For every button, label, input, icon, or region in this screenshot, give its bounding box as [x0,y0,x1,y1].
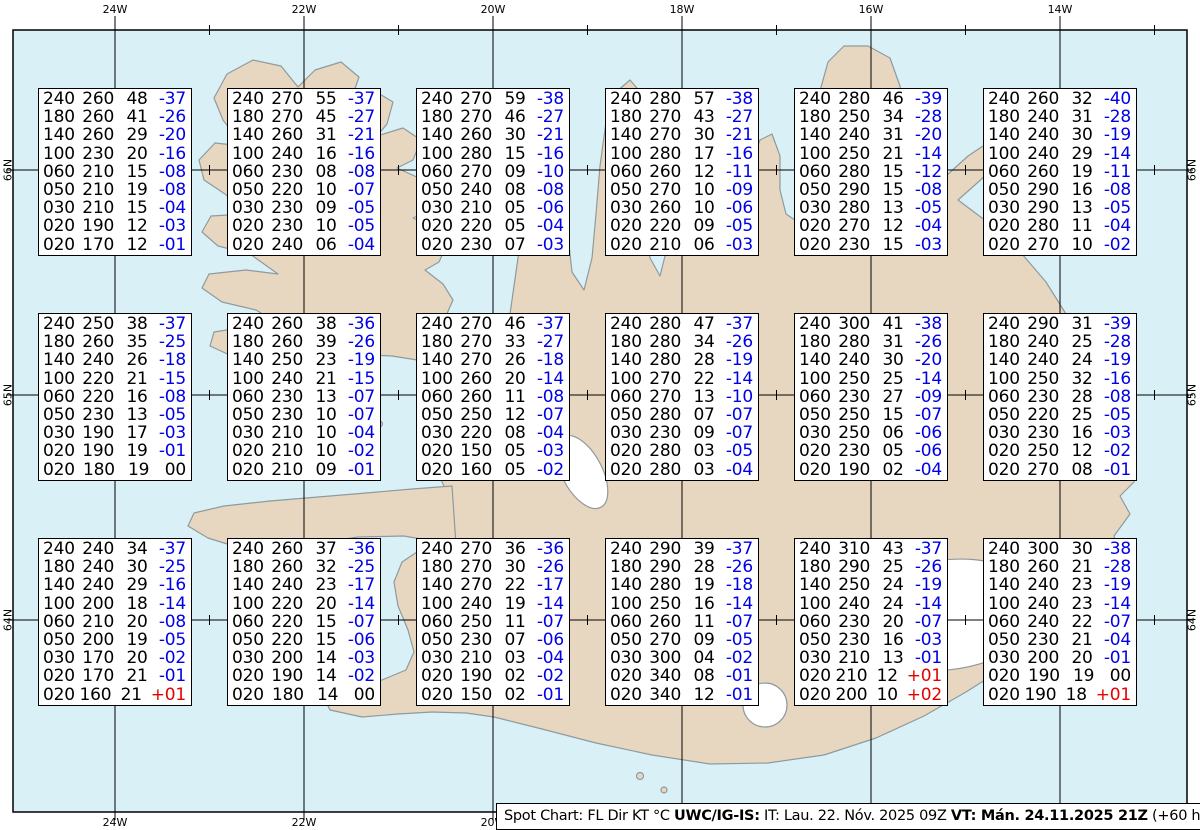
kt-value: 30 [882,351,914,369]
temp-value: -37 [726,315,753,333]
dir-value: 220 [82,388,126,406]
dir-value: 300 [649,649,693,667]
fl-value: 060 [232,163,271,181]
dir-value: 270 [271,90,315,108]
dir-value: 240 [82,351,126,369]
dir-value: 160 [460,461,504,479]
kt-value: 57 [693,90,725,108]
fl-value: 020 [988,217,1027,235]
fl-value: 050 [232,631,271,649]
spot-data-box: 24028046-3918025034-2814024031-201002502… [794,88,948,256]
temp-value: -19 [726,351,753,369]
temp-value: -19 [348,351,375,369]
fl-value: 020 [799,236,838,254]
temp-value: -07 [348,406,375,424]
temp-value: +02 [907,686,942,704]
temp-value: -38 [726,90,753,108]
spot-row: 06021015-08 [43,163,186,181]
temp-value: -26 [537,558,564,576]
dir-value: 220 [460,217,504,235]
fl-value: 140 [988,576,1027,594]
dir-value: 240 [82,540,126,558]
meridian-label-top: 18W [670,3,695,16]
dir-value: 270 [649,181,693,199]
fl-value: 240 [421,315,460,333]
temp-value: -26 [159,108,186,126]
kt-value: 46 [504,108,536,126]
kt-value: 12 [126,236,158,254]
spot-row: 05025015-07 [799,406,942,424]
kt-value: 16 [1071,181,1103,199]
dir-value: 170 [82,236,126,254]
fl-value: 060 [421,163,460,181]
fl-value: 180 [988,108,1027,126]
spot-data-box: 24026038-3618026039-2614025023-191002402… [227,313,381,481]
spot-row: 05021019-08 [43,181,186,199]
temp-value: -05 [159,406,186,424]
spot-row: 18026039-26 [232,333,375,351]
temp-value: -02 [537,667,564,685]
temp-value: -08 [159,181,186,199]
fl-value: 140 [799,126,838,144]
kt-value: 08 [315,163,347,181]
dir-value: 200 [836,686,877,704]
dir-value: 210 [271,442,315,460]
spot-row: 14028028-19 [610,351,753,369]
spot-row: 18029028-26 [610,558,753,576]
spot-row: 02019018+01 [988,686,1131,704]
temp-value: -01 [159,236,186,254]
parallel-label-right: 65N [1186,384,1199,406]
spot-row: 06026011-07 [610,613,753,631]
kt-value: 37 [315,540,347,558]
dir-value: 260 [271,126,315,144]
fl-value: 060 [610,388,649,406]
kt-value: 30 [504,558,536,576]
dir-value: 210 [271,424,315,442]
dir-value: 250 [838,145,882,163]
dir-value: 300 [1027,540,1071,558]
temp-value: -04 [1104,217,1131,235]
kt-value: 21 [126,370,158,388]
temp-value: -36 [348,540,375,558]
dir-value: 240 [1027,351,1071,369]
dir-value: 270 [460,163,504,181]
temp-value: -38 [537,90,564,108]
spot-row: 06025011-07 [421,613,564,631]
dir-value: 190 [271,667,315,685]
fl-value: 050 [232,181,271,199]
meridian-label-top: 24W [103,3,128,16]
spot-row: 14024026-18 [43,351,186,369]
fl-value: 240 [610,315,649,333]
spot-row: 05020019-05 [43,631,186,649]
dir-value: 230 [838,442,882,460]
temp-value: -11 [1104,163,1131,181]
fl-value: 060 [43,163,82,181]
caption-segment: (+60 h) [1148,808,1200,824]
spot-row: 06024022-07 [988,613,1131,631]
kt-value: 41 [882,315,914,333]
fl-value: 020 [799,442,838,460]
kt-value: 26 [504,351,536,369]
spot-row: 02028011-04 [988,217,1131,235]
temp-value: -14 [726,370,753,388]
dir-value: 160 [80,686,121,704]
temp-value: -02 [1104,442,1131,460]
spot-row: 03021010-04 [232,424,375,442]
kt-value: 17 [693,145,725,163]
dir-value: 290 [649,558,693,576]
temp-value: -04 [348,236,375,254]
fl-value: 020 [610,667,649,685]
kt-value: 11 [1071,217,1103,235]
spot-row: 0201801400 [232,686,375,704]
spot-row: 24030041-38 [799,315,942,333]
fl-value: 060 [799,613,838,631]
temp-value: -17 [537,576,564,594]
dir-value: 230 [271,217,315,235]
spot-row: 02019002-04 [799,461,942,479]
spot-row: 06023013-07 [232,388,375,406]
kt-value: 14 [315,649,347,667]
dir-value: 270 [460,540,504,558]
temp-value: -02 [537,461,564,479]
spot-row: 24029031-39 [988,315,1131,333]
spot-row: 06027013-10 [610,388,753,406]
spot-row: 05029016-08 [988,181,1131,199]
dir-value: 200 [82,595,126,613]
kt-value: 08 [504,181,536,199]
temp-value: -08 [537,388,564,406]
parallel-label-right: 66N [1186,159,1199,181]
spot-row: 18026021-28 [988,558,1131,576]
spot-row: 02019002-02 [421,667,564,685]
kt-value: 21 [121,686,151,704]
kt-value: 25 [882,370,914,388]
fl-value: 100 [232,370,271,388]
spot-row: 06026011-08 [421,388,564,406]
temp-value: -04 [537,217,564,235]
spot-row: 0201901900 [988,667,1131,685]
spot-row: 02021006-03 [610,236,753,254]
fl-value: 050 [43,406,82,424]
kt-value: 19 [693,576,725,594]
dir-value: 290 [838,181,882,199]
temp-value: -08 [537,181,564,199]
spot-row: 18026035-25 [43,333,186,351]
fl-value: 020 [232,667,271,685]
spot-row: 02028003-04 [610,461,753,479]
spot-row: 06021020-08 [43,613,186,631]
temp-value: -39 [1104,315,1131,333]
spot-row: 14024023-19 [988,576,1131,594]
temp-value: -08 [159,388,186,406]
spot-row: 05023021-04 [988,631,1131,649]
temp-value: -26 [726,333,753,351]
fl-value: 140 [988,126,1027,144]
spot-row: 05029015-08 [799,181,942,199]
temp-value: -04 [537,424,564,442]
dir-value: 250 [460,406,504,424]
fl-value: 240 [988,90,1027,108]
fl-value: 050 [43,631,82,649]
kt-value: 07 [693,406,725,424]
dir-value: 240 [271,576,315,594]
kt-value: 32 [315,558,347,576]
kt-value: 29 [126,576,158,594]
spot-row: 05022010-07 [232,181,375,199]
kt-value: 22 [1071,613,1103,631]
dir-value: 250 [838,424,882,442]
kt-value: 31 [882,333,914,351]
fl-value: 060 [421,613,460,631]
kt-value: 33 [504,333,536,351]
temp-value: -01 [1104,649,1131,667]
kt-value: 06 [882,424,914,442]
temp-value: -14 [915,370,942,388]
temp-value: -20 [159,126,186,144]
dir-value: 150 [460,686,504,704]
spot-row: 10025032-16 [988,370,1131,388]
temp-value: -26 [915,558,942,576]
temp-value: -07 [1104,613,1131,631]
temp-value: -07 [348,613,375,631]
kt-value: 05 [504,442,536,460]
fl-value: 180 [610,108,649,126]
fl-value: 020 [421,667,460,685]
temp-value: -04 [537,649,564,667]
dir-value: 280 [838,199,882,217]
dir-value: 270 [649,370,693,388]
spot-row: 02023007-03 [421,236,564,254]
kt-value: 27 [882,388,914,406]
temp-value: -08 [348,163,375,181]
dir-value: 240 [460,181,504,199]
temp-value: -06 [726,199,753,217]
fl-value: 180 [232,108,271,126]
temp-value: -25 [348,558,375,576]
kt-value: 16 [693,595,725,613]
spot-row: 14025024-19 [799,576,942,594]
dir-value: 230 [271,406,315,424]
temp-value: -03 [726,236,753,254]
kt-value: 43 [693,108,725,126]
dir-value: 180 [83,461,128,479]
temp-value: -27 [537,108,564,126]
temp-value: -21 [537,126,564,144]
fl-value: 100 [610,595,649,613]
temp-value: -19 [1104,126,1131,144]
kt-value: 34 [693,333,725,351]
kt-value: 16 [315,145,347,163]
kt-value: 18 [1066,686,1096,704]
spot-row: 06023020-07 [799,613,942,631]
spot-row: 03021015-04 [43,199,186,217]
dir-value: 280 [838,333,882,351]
kt-value: 24 [1071,351,1103,369]
spot-row: 03021013-01 [799,649,942,667]
temp-value: -11 [726,163,753,181]
kt-value: 28 [1071,388,1103,406]
parallel-label-left: 66N [2,159,15,181]
temp-value: -05 [915,199,942,217]
dir-value: 210 [82,163,126,181]
spot-row: 06026019-11 [988,163,1131,181]
temp-value: -16 [159,576,186,594]
spot-row: 02021010-02 [232,442,375,460]
dir-value: 190 [1028,667,1073,685]
spot-data-box: 24028057-3818027043-2714027030-211002801… [605,88,759,256]
spot-data-box: 24025038-3718026035-2514024026-181002202… [38,313,192,481]
temp-value: -21 [348,126,375,144]
spot-row: 10028015-16 [421,145,564,163]
dir-value: 210 [838,649,882,667]
dir-value: 230 [838,613,882,631]
dir-value: 240 [1027,145,1071,163]
spot-row: 02027010-02 [988,236,1131,254]
kt-value: 32 [1071,370,1103,388]
temp-value: -18 [537,351,564,369]
fl-value: 020 [988,461,1027,479]
fl-value: 100 [421,370,460,388]
kt-value: 35 [126,333,158,351]
temp-value: -08 [1104,181,1131,199]
temp-value: -37 [537,315,564,333]
dir-value: 210 [82,181,126,199]
fl-value: 240 [421,90,460,108]
kt-value: 02 [882,461,914,479]
kt-value: 31 [1071,108,1103,126]
spot-row: 02016021+01 [43,686,186,704]
fl-value: 140 [799,576,838,594]
kt-value: 15 [882,181,914,199]
spot-row: 02022009-05 [610,217,753,235]
temp-value: -01 [726,667,753,685]
temp-value: -07 [537,406,564,424]
spot-row: 10025016-14 [610,595,753,613]
kt-value: 13 [882,199,914,217]
fl-value: 020 [43,442,82,460]
kt-value: 24 [882,595,914,613]
dir-value: 210 [271,461,315,479]
temp-value: +01 [1096,686,1131,704]
fl-value: 020 [610,686,649,704]
kt-value: 20 [1071,649,1103,667]
dir-value: 260 [271,315,315,333]
spot-row: 06022016-08 [43,388,186,406]
fl-value: 050 [421,181,460,199]
spot-row: 02017012-01 [43,236,186,254]
temp-value: -14 [348,595,375,613]
temp-value: -19 [915,576,942,594]
dir-value: 170 [82,667,126,685]
kt-value: 03 [693,442,725,460]
fl-value: 240 [799,540,838,558]
kt-value: 22 [504,576,536,594]
dir-value: 310 [838,540,882,558]
kt-value: 30 [1071,540,1103,558]
fl-value: 100 [988,595,1027,613]
temp-value: -14 [1104,145,1131,163]
dir-value: 280 [460,145,504,163]
dir-value: 240 [82,558,126,576]
dir-value: 210 [460,649,504,667]
spot-row: 02017021-01 [43,667,186,685]
fl-value: 020 [421,236,460,254]
kt-value: 25 [1071,333,1103,351]
dir-value: 200 [1027,649,1071,667]
dir-value: 260 [82,90,126,108]
spot-row: 03029013-05 [988,199,1131,217]
kt-value: 41 [126,108,158,126]
temp-value: -37 [726,540,753,558]
dir-value: 260 [82,126,126,144]
kt-value: 21 [315,370,347,388]
fl-value: 240 [43,540,82,558]
fl-value: 030 [799,649,838,667]
kt-value: 12 [504,406,536,424]
temp-value: -19 [1104,576,1131,594]
fl-value: 100 [232,145,271,163]
dir-value: 250 [838,108,882,126]
spot-row: 24027055-37 [232,90,375,108]
fl-value: 060 [43,613,82,631]
kt-value: 19 [1071,163,1103,181]
kt-value: 23 [1071,595,1103,613]
kt-value: 29 [1071,145,1103,163]
kt-value: 43 [882,540,914,558]
temp-value: -25 [159,333,186,351]
spot-data-box: 24024034-3718024030-2514024029-161002001… [38,538,192,706]
dir-value: 190 [838,461,882,479]
fl-value: 240 [799,90,838,108]
kt-value: 10 [315,406,347,424]
dir-value: 260 [271,540,315,558]
spot-row: 18024031-28 [988,108,1131,126]
temp-value: -06 [348,631,375,649]
spot-row: 03023016-03 [988,424,1131,442]
dir-value: 220 [271,181,315,199]
spot-row: 05028007-07 [610,406,753,424]
dir-value: 280 [649,576,693,594]
dir-value: 220 [271,631,315,649]
parallel-label-right: 64N [1186,609,1199,631]
dir-value: 290 [1027,181,1071,199]
fl-value: 020 [988,667,1028,685]
fl-value: 100 [799,370,838,388]
spot-row: 18027043-27 [610,108,753,126]
spot-data-box: 24030041-3818028031-2614024030-201002502… [794,313,948,481]
dir-value: 300 [838,315,882,333]
kt-value: 55 [315,90,347,108]
fl-value: 240 [610,540,649,558]
temp-value: -01 [1104,461,1131,479]
dir-value: 280 [649,442,693,460]
dir-value: 230 [1027,424,1071,442]
dir-value: 260 [460,388,504,406]
kt-value: 23 [315,576,347,594]
fl-value: 100 [799,595,838,613]
dir-value: 170 [82,649,126,667]
spot-row: 03026010-06 [610,199,753,217]
spot-data-box: 24027055-3718027045-2714026031-211002401… [227,88,381,256]
dir-value: 190 [460,667,504,685]
fl-value: 030 [232,424,271,442]
temp-value: -26 [915,333,942,351]
spot-row: 03023009-05 [232,199,375,217]
dir-value: 240 [1027,126,1071,144]
